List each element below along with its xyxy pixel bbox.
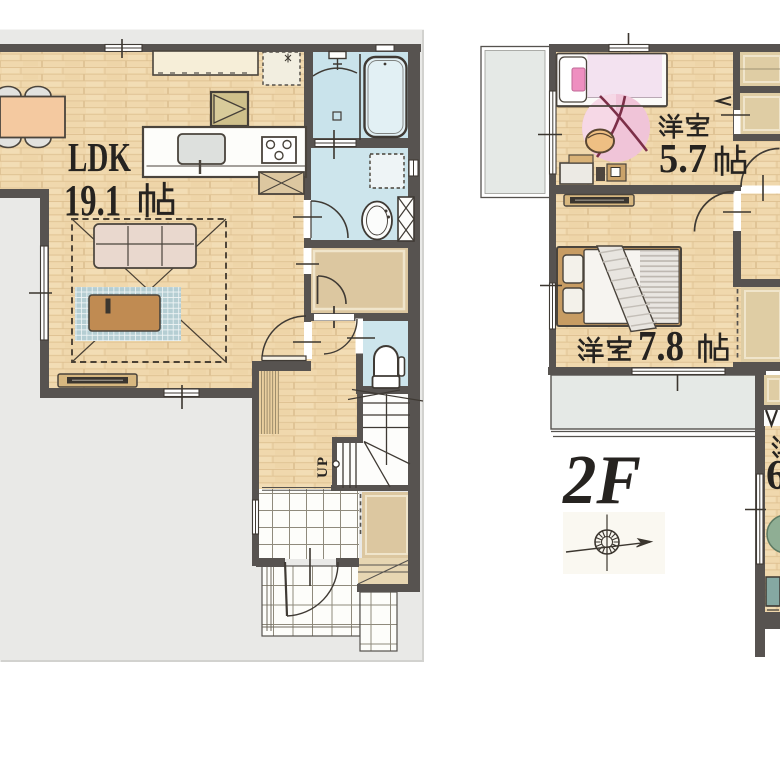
svg-text:2F: 2F — [562, 442, 641, 519]
svg-text:LDK: LDK — [68, 134, 131, 180]
svg-text:7.8: 7.8 — [638, 324, 684, 370]
svg-text:5.7: 5.7 — [659, 135, 707, 181]
svg-text:6: 6 — [766, 453, 780, 499]
svg-text:19.1: 19.1 — [64, 176, 121, 225]
svg-text:UP: UP — [315, 456, 331, 478]
